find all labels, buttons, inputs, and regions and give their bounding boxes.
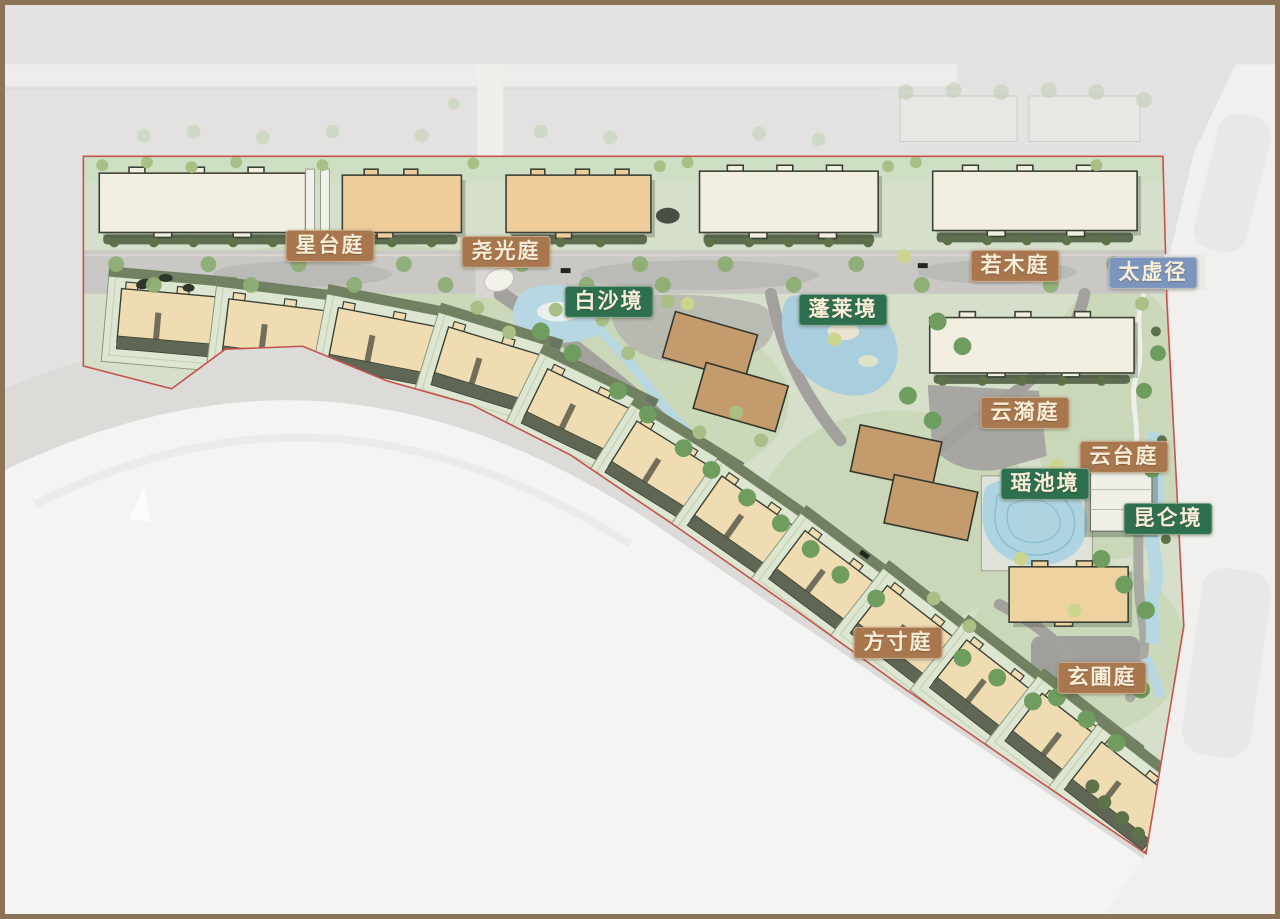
zone-label-penglai-realm: 蓬莱境 <box>799 294 888 326</box>
ghost-context-buildings <box>878 82 1166 157</box>
zone-label-xingtai-court: 星台庭 <box>286 230 375 262</box>
building-b1 <box>99 167 305 237</box>
building-b5 <box>933 165 1137 236</box>
zone-label-yaoguang-court: 尧光庭 <box>462 236 551 268</box>
site-master-plan: 星台庭 尧光庭 白沙境 蓬莱境 若木庭 太虚径 云漪庭 云台庭 瑶池境 昆仑境 … <box>0 0 1280 919</box>
zone-label-baisha-realm: 白沙境 <box>565 286 654 318</box>
building-c3 <box>1009 561 1128 626</box>
zone-label-yuntai-court: 云台庭 <box>1080 441 1169 473</box>
zone-label-yaochi-realm: 瑶池境 <box>1001 468 1090 500</box>
building-b3 <box>506 169 651 238</box>
zone-label-taixu-path: 太虚径 <box>1109 257 1198 289</box>
building-b4 <box>700 165 879 238</box>
zone-label-yunyi-court: 云漪庭 <box>981 397 1070 429</box>
zone-label-kunlun-realm: 昆仑境 <box>1124 503 1213 535</box>
pergola <box>321 169 330 232</box>
zone-label-xuanpu-court: 玄圃庭 <box>1058 662 1147 694</box>
zone-label-fangcun-court: 方寸庭 <box>854 627 943 659</box>
pergola <box>306 169 315 232</box>
building-b2 <box>342 169 461 238</box>
zone-label-ruomu-court: 若木庭 <box>971 250 1060 282</box>
